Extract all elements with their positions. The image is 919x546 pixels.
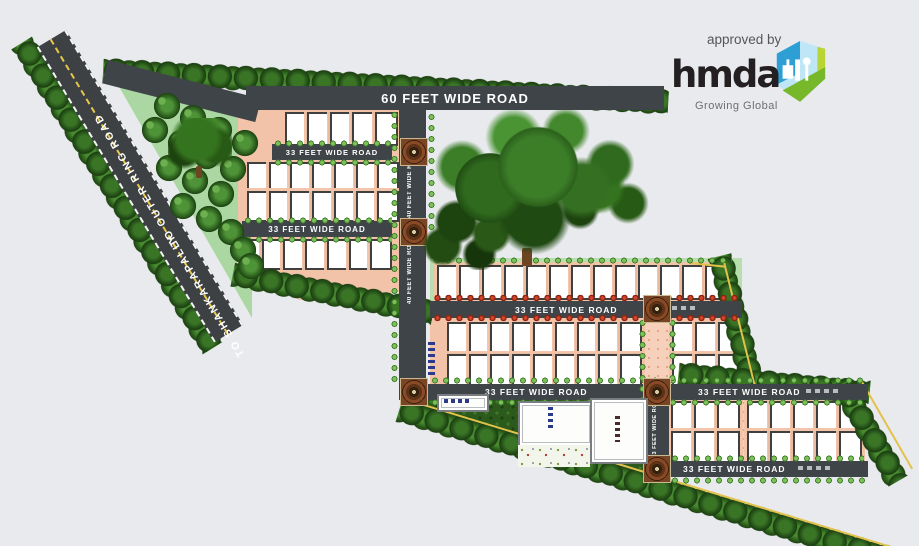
park-bush	[236, 252, 266, 280]
hmda-logo-icon	[771, 38, 829, 104]
hmda-brand-text: hmda	[671, 56, 779, 93]
hmda-tagline: Growing Global	[695, 100, 778, 112]
approval-block: approved by hmda Growing Global	[665, 26, 843, 116]
park-tree-trunk	[196, 166, 202, 178]
site-plan: 60 FEET WIDE ROAD TO OUTER RING ROAD TO …	[0, 0, 919, 546]
park-tree	[168, 118, 232, 170]
park-bush	[230, 129, 260, 157]
park-bush	[206, 180, 236, 208]
big-tree	[434, 110, 634, 260]
